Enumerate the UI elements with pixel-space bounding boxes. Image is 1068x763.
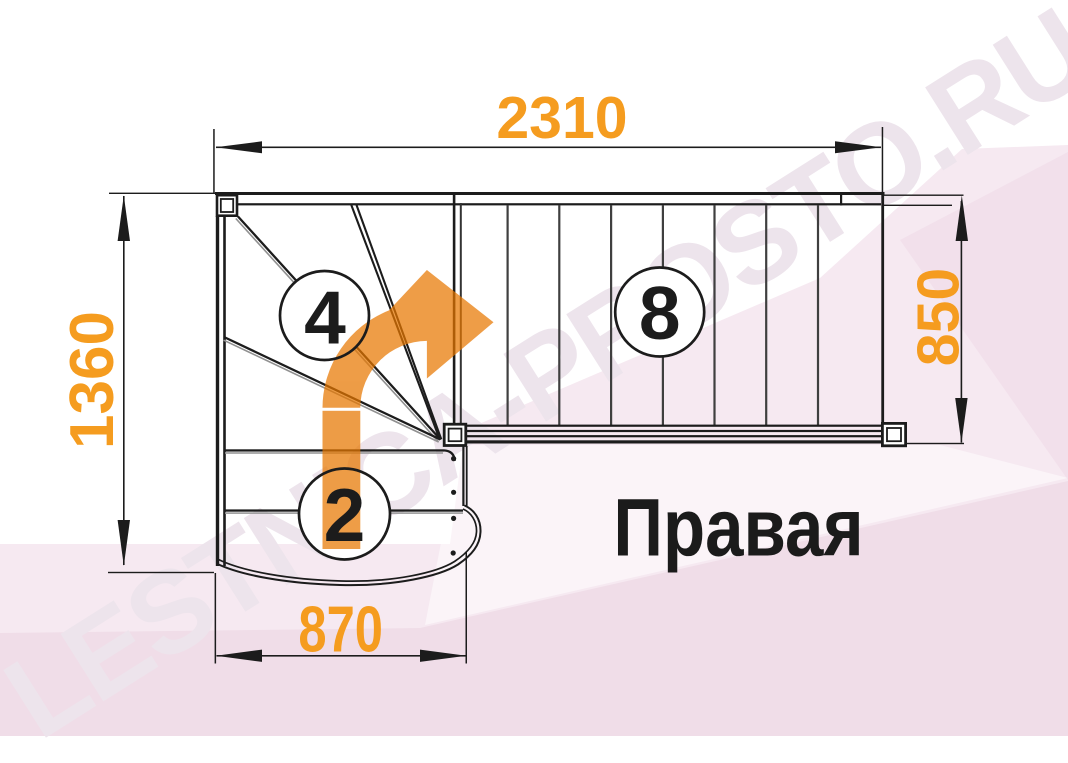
svg-text:Правая: Правая: [613, 483, 863, 574]
svg-text:1360: 1360: [58, 311, 127, 449]
svg-text:870: 870: [298, 594, 383, 666]
svg-text:2: 2: [324, 473, 366, 557]
svg-text:4: 4: [304, 276, 346, 360]
svg-text:2310: 2310: [496, 85, 627, 151]
svg-text:8: 8: [639, 271, 681, 355]
svg-text:850: 850: [906, 268, 972, 366]
